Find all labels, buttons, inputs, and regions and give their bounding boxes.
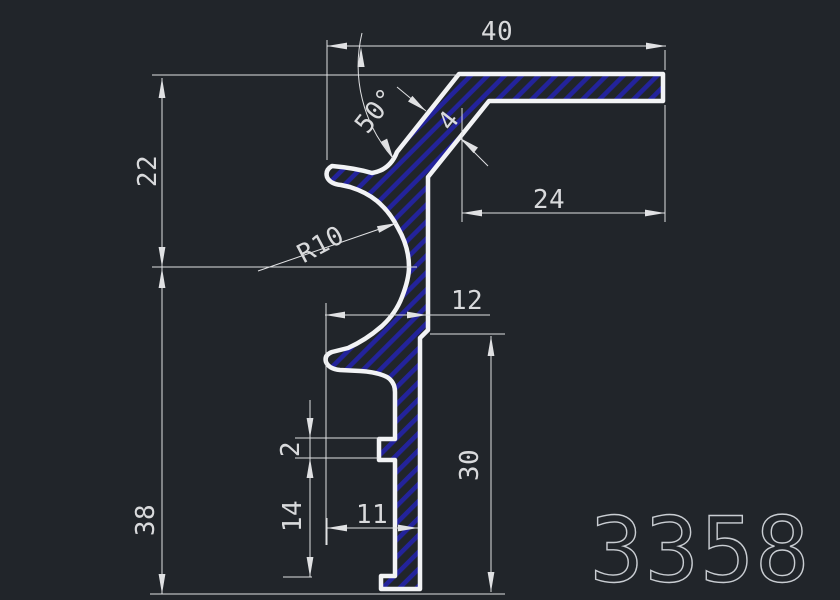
dim-12-label: 12	[451, 286, 483, 316]
dim-11-label: 11	[356, 500, 388, 530]
dim-2-label: 2	[276, 441, 306, 457]
drawing-number: 3358	[590, 498, 811, 600]
dim-14: 14	[278, 500, 313, 577]
cad-drawing-canvas: 40 50° 4 22 38 24 R10	[0, 0, 840, 600]
dim-14-label: 14	[278, 500, 308, 532]
dim-50deg-label: 50°	[349, 83, 402, 140]
dim-30: 30	[430, 334, 505, 592]
dim-2: 2	[276, 400, 380, 577]
dim-r10-label: R10	[293, 220, 350, 269]
dim-38-label: 38	[131, 504, 161, 536]
dim-24: 24	[462, 105, 665, 222]
dim-50deg: 50°	[349, 33, 402, 158]
dim-r10: R10	[258, 220, 397, 271]
dim-38: 38	[131, 268, 165, 594]
dim-40-label: 40	[481, 17, 513, 47]
dim-22: 22	[133, 78, 165, 267]
dim-24-label: 24	[533, 185, 565, 215]
dim-30-label: 30	[455, 449, 485, 481]
dim-22-label: 22	[133, 155, 163, 187]
drawing-svg: 40 50° 4 22 38 24 R10	[0, 0, 840, 600]
